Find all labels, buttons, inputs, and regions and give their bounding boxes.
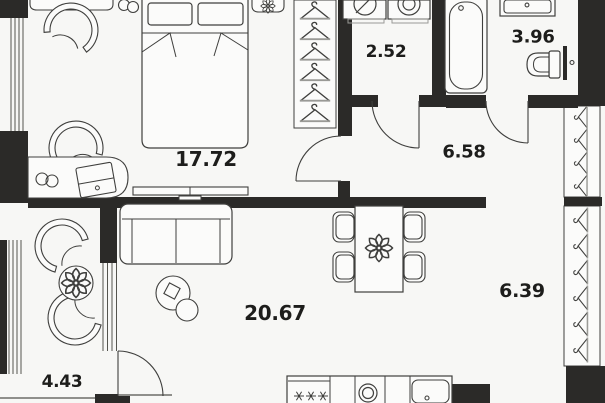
dining-table	[355, 206, 403, 292]
room-label-bathroom: 3.96	[511, 27, 554, 48]
washbasin	[500, 0, 555, 16]
kitchen-counter	[287, 376, 452, 403]
room-label-laundry: 2.52	[366, 42, 407, 62]
cups-icon	[119, 0, 139, 13]
door-swing-laundry	[372, 101, 419, 148]
pillow	[198, 3, 243, 25]
desk	[28, 157, 128, 198]
dining-chair	[333, 212, 354, 242]
balcony-table	[59, 266, 93, 300]
door-swing-bathroom	[486, 101, 528, 143]
room-label-hallway: 6.58	[442, 142, 485, 163]
coffee-table	[156, 276, 198, 321]
floor-plan: 17.72 2.52 3.96 6.58 6.39 20.67 4.43	[0, 0, 605, 403]
room-label-bedroom: 17.72	[175, 147, 237, 171]
bed	[142, 0, 248, 148]
washing-machine-icon	[343, 0, 386, 23]
laptop-icon	[76, 162, 117, 198]
dryer-icon	[388, 0, 430, 23]
closet-dressing	[564, 206, 600, 366]
dining-chair	[333, 252, 354, 282]
balcony-chair-icon	[24, 208, 91, 275]
nightstand	[252, 0, 284, 13]
door-swing-balcony	[118, 351, 163, 396]
closet-bedroom	[294, 0, 336, 128]
pillow	[148, 3, 192, 25]
sofa	[120, 204, 232, 264]
dining-chair	[404, 212, 425, 242]
glazed-partition	[103, 263, 117, 351]
kitchen-sink-icon	[412, 380, 449, 403]
room-label-living: 20.67	[244, 301, 306, 325]
closet-hallway	[564, 105, 600, 197]
thresholds	[0, 395, 172, 398]
room-label-balcony: 4.43	[42, 372, 83, 392]
window-balcony	[9, 240, 21, 374]
window-bedroom	[11, 18, 23, 131]
door-swing-bedroom	[296, 136, 341, 181]
dining-chair	[404, 252, 425, 282]
floor-plan-drawing	[0, 0, 605, 403]
bathtub	[445, 0, 487, 93]
room-label-dressing: 6.39	[499, 280, 545, 302]
